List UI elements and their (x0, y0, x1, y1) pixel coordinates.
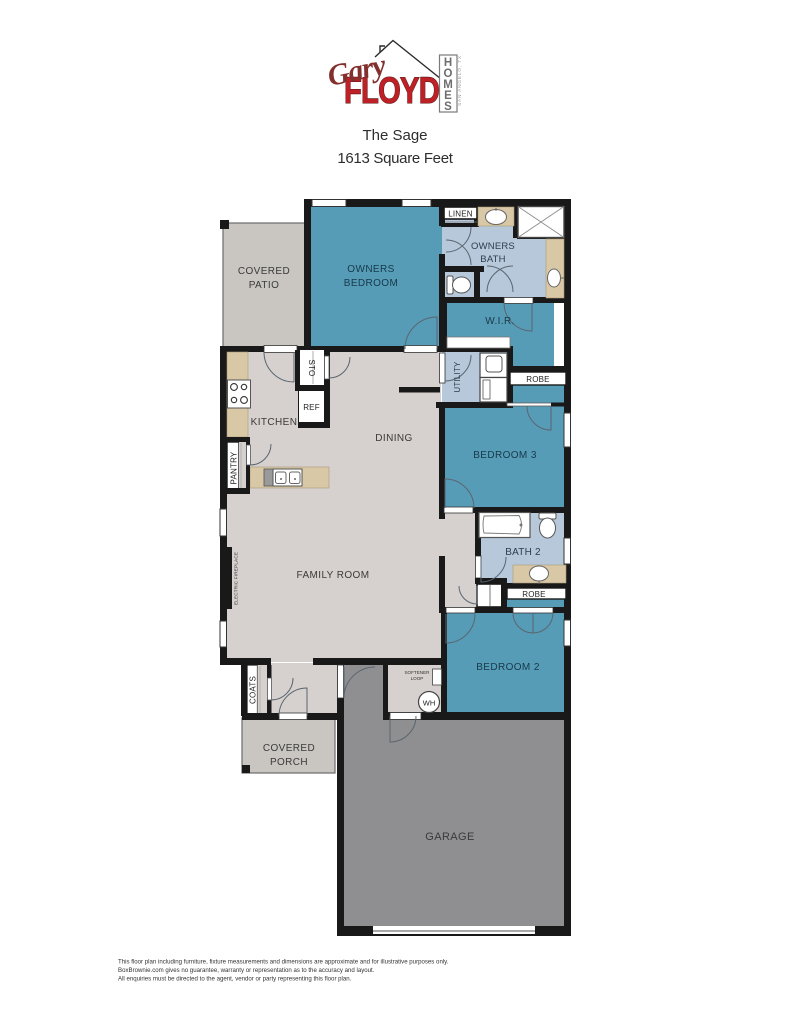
svg-text:PORCH: PORCH (270, 757, 308, 768)
svg-text:BEDROOM: BEDROOM (344, 278, 398, 289)
svg-text:OWNERS: OWNERS (347, 264, 394, 275)
svg-text:LOOP: LOOP (411, 676, 424, 681)
svg-text:BATH: BATH (480, 254, 505, 265)
svg-text:PANTRY: PANTRY (230, 451, 239, 484)
svg-text:BATH 2: BATH 2 (505, 547, 541, 558)
svg-text:UTILITY: UTILITY (453, 361, 462, 393)
svg-text:COVERED: COVERED (263, 743, 315, 754)
svg-text:ROBE: ROBE (526, 375, 549, 384)
svg-text:SAN ANGELO, TX: SAN ANGELO, TX (457, 55, 463, 106)
svg-text:OWNERS: OWNERS (471, 241, 515, 252)
svg-text:S: S (444, 101, 452, 113)
svg-text:DINING: DINING (375, 433, 412, 444)
svg-text:BEDROOM 2: BEDROOM 2 (476, 662, 540, 673)
svg-text:W.I.R.: W.I.R. (485, 316, 515, 327)
svg-text:STO: STO (307, 360, 316, 377)
svg-text:All enquiries must be directed: All enquiries must be directed to the ag… (118, 976, 352, 983)
svg-text:BoxBrownie.com gives no guaran: BoxBrownie.com gives no guarantee, warra… (118, 967, 375, 974)
svg-text:COVERED: COVERED (238, 266, 290, 277)
svg-text:KITCHEN: KITCHEN (251, 417, 298, 428)
svg-text:ROBE: ROBE (522, 590, 545, 599)
svg-text:ELECTRIC FIREPLACE: ELECTRIC FIREPLACE (234, 552, 239, 605)
svg-text:LINEN: LINEN (448, 210, 473, 219)
svg-text:This floor plan including furn: This floor plan including furniture, fix… (118, 959, 449, 966)
svg-text:SOFTENER: SOFTENER (404, 670, 430, 675)
svg-text:The Sage: The Sage (362, 127, 427, 144)
svg-text:PATIO: PATIO (249, 280, 280, 291)
svg-text:COATS: COATS (249, 676, 258, 704)
svg-text:1613 Square Feet: 1613 Square Feet (337, 150, 453, 167)
svg-text:FAMILY ROOM: FAMILY ROOM (297, 570, 370, 581)
svg-text:REF: REF (303, 403, 320, 412)
svg-text:GARAGE: GARAGE (425, 831, 474, 843)
svg-text:WH: WH (423, 699, 436, 708)
svg-text:BEDROOM 3: BEDROOM 3 (473, 450, 537, 461)
